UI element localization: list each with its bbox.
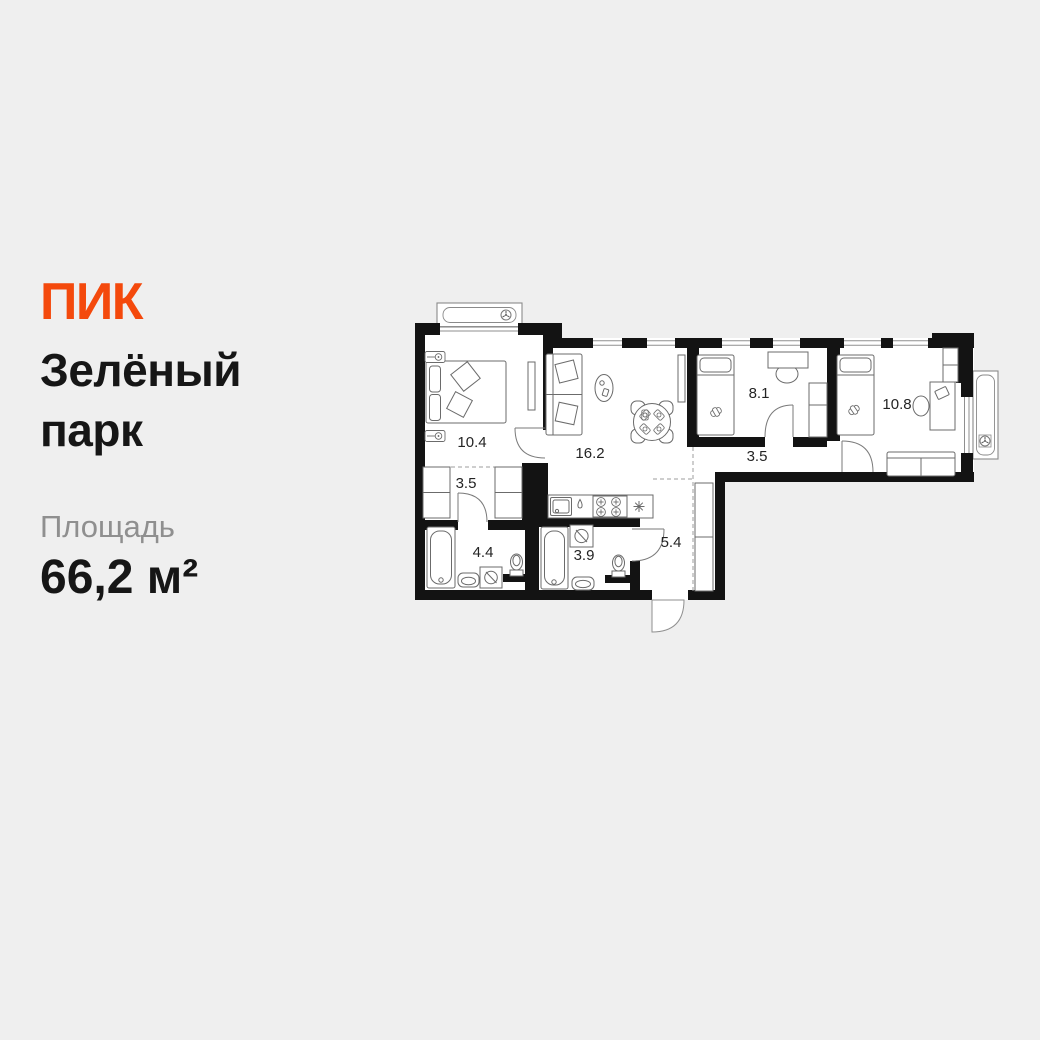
- pillow: [700, 358, 731, 372]
- desk-chair: [913, 396, 929, 416]
- tv-unit: [678, 355, 685, 402]
- room-label-wardrobe-corridor: 3.5: [456, 475, 477, 492]
- room-label-bedroom-3: 10.8: [882, 396, 911, 413]
- wardrobe: [809, 383, 827, 437]
- room-label-bedroom-2: 8.1: [749, 385, 770, 402]
- cushion: [555, 360, 578, 383]
- entrance-door: [652, 600, 684, 632]
- toilet-tank: [510, 570, 523, 576]
- area-value: 66,2 м²: [40, 552, 198, 605]
- pillow: [840, 358, 871, 372]
- room-label-hallway: 5.4: [661, 534, 682, 551]
- room-label-bedroom-main: 10.4: [457, 434, 486, 451]
- balcony-left: [437, 303, 522, 327]
- dining-table: [634, 404, 671, 441]
- pik-logo: ПИК: [40, 276, 142, 328]
- floorplan: 10.4 16.2 8.1 10.8 3.5 3.5 4.4 3.9 5.4: [410, 295, 1002, 647]
- coffee-table: [595, 375, 613, 402]
- desk: [768, 352, 808, 368]
- tv-unit: [528, 362, 535, 410]
- toilet-tank: [612, 571, 625, 577]
- room-label-bathroom-1: 4.4: [473, 544, 494, 561]
- room-label-bathroom-2: 3.9: [574, 547, 595, 564]
- pillow: [430, 366, 441, 392]
- area-label: Площадь: [40, 510, 175, 544]
- pillow: [430, 395, 441, 421]
- room-label-living-kitchen: 16.2: [575, 445, 604, 462]
- page: { "background": "#efefef", "brand": { "l…: [0, 0, 1040, 1040]
- project-title: Зелёный парк: [40, 340, 241, 460]
- project-title-line2: парк: [40, 400, 241, 460]
- hallway-furniture: [695, 483, 713, 591]
- balcony-right: [973, 371, 998, 459]
- cushion: [555, 402, 578, 425]
- project-title-line1: Зелёный: [40, 340, 241, 400]
- room-label-corridor: 3.5: [747, 448, 768, 465]
